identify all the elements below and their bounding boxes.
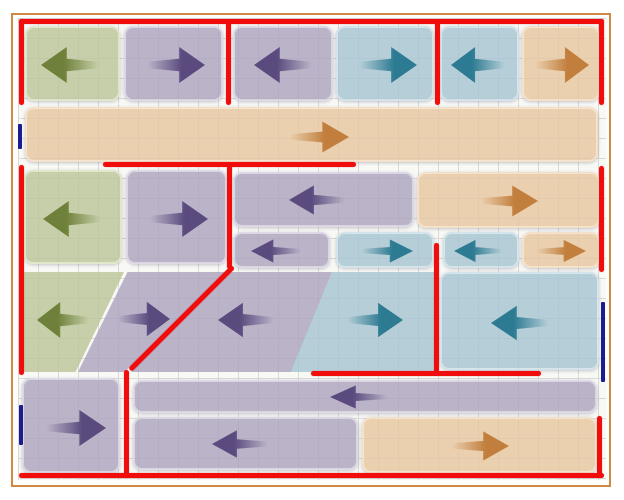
blue-mark-left-mark-lower: [19, 405, 23, 445]
blue-mark-left-mark-upper: [18, 124, 22, 149]
diagram-canvas: [0, 0, 624, 500]
blue-marks-layer: [0, 0, 624, 500]
blue-mark-right-mark: [601, 302, 605, 382]
